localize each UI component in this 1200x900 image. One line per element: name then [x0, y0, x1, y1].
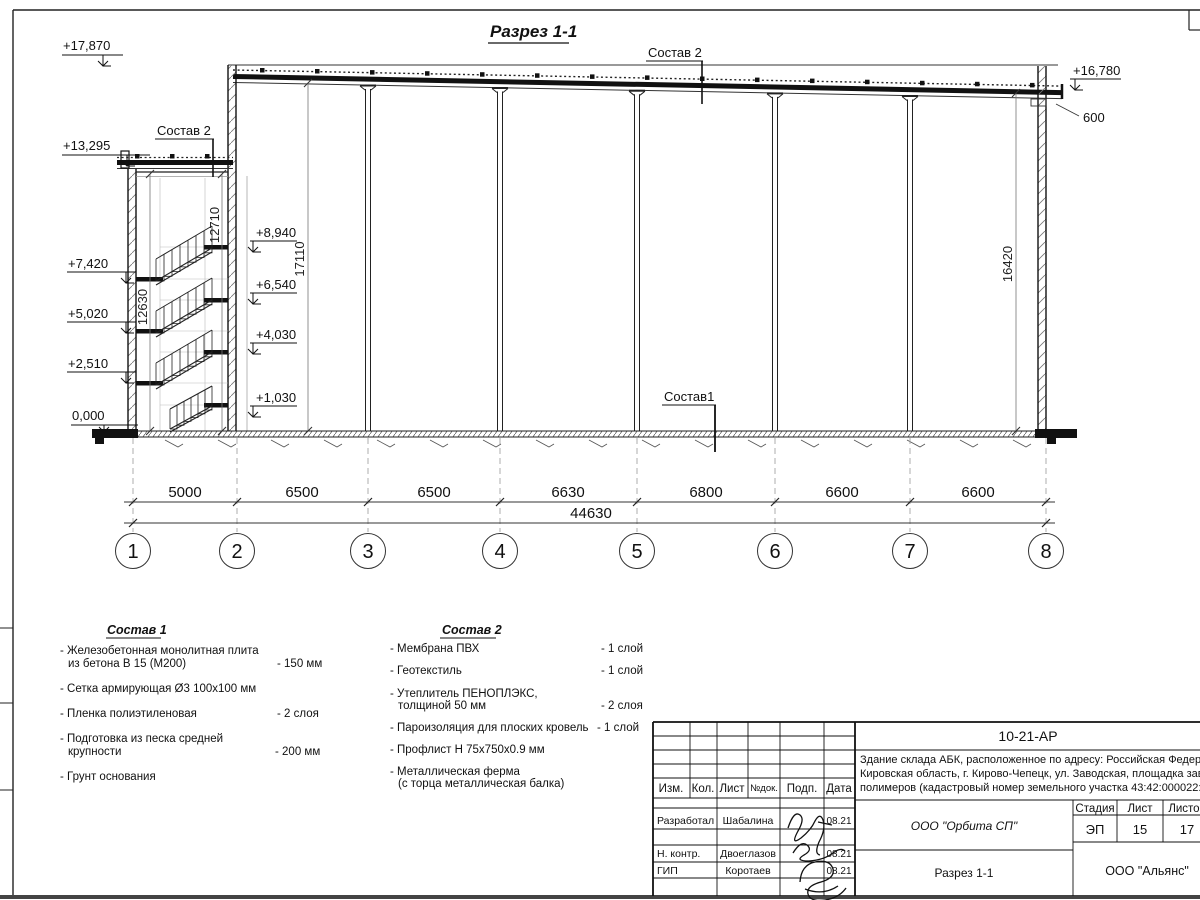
span-dim: 6500 — [285, 484, 318, 501]
span-dim: 6800 — [689, 484, 722, 501]
svg-text:Здание склада АБК, расположенн: Здание склада АБК, расположенное по адре… — [860, 754, 1200, 766]
svg-text:из бетона В 15 (М200): из бетона В 15 (М200) — [68, 658, 186, 670]
elev-16780: +16,780 — [1070, 63, 1121, 90]
sostav2-header: Состав 2 — [442, 623, 502, 637]
elev-17870: +17,870 — [62, 38, 123, 66]
svg-text:крупности: крупности — [68, 746, 121, 758]
axis-bubble-6: 6 — [769, 541, 780, 563]
axis8-wall — [1038, 66, 1046, 431]
column-axis5 — [629, 91, 645, 431]
svg-text:+16,780: +16,780 — [1073, 63, 1120, 78]
svg-text:+7,420: +7,420 — [68, 256, 108, 271]
axis-bubble-4: 4 — [494, 541, 505, 563]
svg-text:600: 600 — [1083, 110, 1105, 125]
elev-7420: +7,420 — [67, 256, 136, 283]
dim-12630: 12630 — [135, 289, 150, 325]
doc-code: 10-21-АР — [998, 728, 1057, 744]
svg-text:- 2 слоя: - 2 слоя — [277, 708, 319, 720]
frame-bottom-band — [0, 895, 1200, 899]
svg-text:- Утеплитель ПЕНОПЛЭКС,: - Утеплитель ПЕНОПЛЭКС, — [390, 688, 538, 700]
axis-bubbles: 1 2 3 4 5 6 7 8 — [116, 534, 1064, 569]
axis-bubble-8: 8 — [1040, 541, 1051, 563]
svg-text:- 150 мм: - 150 мм — [277, 658, 322, 670]
sheet-header: Лист — [1128, 803, 1154, 815]
span-dim: 6500 — [417, 484, 450, 501]
svg-text:+13,295: +13,295 — [63, 138, 110, 153]
stage-values: ЭП 15 17 — [1086, 822, 1195, 837]
svg-text:- Пароизоляция для плоских кро: - Пароизоляция для плоских кровель — [390, 722, 589, 734]
column-axis7 — [902, 96, 918, 431]
main-roof — [228, 65, 1062, 99]
hall-columns — [360, 86, 918, 432]
stage-value: ЭП — [1086, 822, 1105, 837]
svg-text:+4,030: +4,030 — [256, 327, 296, 342]
svg-text:(с торца металлическая балка): (с торца металлическая балка) — [398, 778, 565, 790]
role-developer: Разработал — [657, 815, 714, 827]
svg-text:- Сетка армирующая Ø3 100x100: - Сетка армирующая Ø3 100x100 мм — [60, 683, 256, 695]
date-gip: 08.21 — [826, 866, 851, 877]
walls — [128, 65, 1046, 431]
axis-bubble-2: 2 — [231, 541, 242, 563]
elev-6540: +6,540 — [248, 277, 297, 304]
axis-bubble-5: 5 — [631, 541, 642, 563]
callout-sostav1-floor: Состав1 — [662, 389, 716, 452]
elev-2510: +2,510 — [67, 356, 136, 383]
svg-text:- Подготовка из песка средней: - Подготовка из песка средней — [60, 733, 223, 745]
stage-header: Стадия — [1075, 803, 1114, 815]
callout-sostav2-roof: Состав 2 — [646, 45, 703, 104]
axis2-wall — [228, 65, 236, 431]
elev-5020: +5,020 — [67, 306, 136, 333]
svg-text:толщиной 50 мм: толщиной 50 мм — [398, 700, 486, 712]
col-podp: Подп. — [787, 783, 818, 795]
callout-parapet-600: 600 — [1056, 104, 1105, 125]
stage-headers: Стадия Лист Листов — [1075, 803, 1200, 815]
svg-text:Кировская область, г. Кирово-Ч: Кировская область, г. Кирово-Чепецк, ул.… — [860, 768, 1200, 780]
dim-16420: 16420 — [1000, 246, 1015, 282]
svg-text:- Мембрана ПВХ: - Мембрана ПВХ — [390, 643, 480, 655]
span-dim: 5000 — [168, 484, 201, 501]
col-izm: Изм. — [659, 783, 684, 795]
total-dim: 44630 — [570, 505, 612, 522]
svg-text:- Геотекстиль: - Геотекстиль — [390, 665, 462, 677]
sostav1-header: Состав 1 — [107, 623, 167, 637]
svg-text:полимеров (кадастровый номер з: полимеров (кадастровый номер земельного … — [860, 782, 1200, 794]
sostav1-list: Состав 1 - Железобетонная монолитная пли… — [60, 623, 322, 783]
title-block: 10-21-АР Здание склада АБК, расположенно… — [653, 722, 1200, 900]
axis-bubble-1: 1 — [127, 541, 138, 563]
column-axis4 — [492, 88, 508, 431]
svg-text:+1,030: +1,030 — [256, 390, 296, 405]
axis-bubble-3: 3 — [362, 541, 373, 563]
tb-header-row: Изм. Кол. Лист №док. Подп. Дата — [659, 783, 853, 795]
svg-text:Состав 2: Состав 2 — [157, 123, 211, 138]
tb-signature-rows: Разработал Шабалина 08.21 Н. контр. Двое… — [657, 815, 852, 877]
ground-slab — [92, 429, 1077, 447]
role-gip: ГИП — [657, 865, 678, 877]
svg-text:- Пленка полиэтиленовая: - Пленка полиэтиленовая — [60, 708, 197, 720]
svg-text:+17,870: +17,870 — [63, 38, 110, 53]
svg-text:- Железобетонная монолитная п: - Железобетонная монолитная плита — [60, 645, 259, 657]
dim-12710: 12710 — [207, 207, 222, 243]
sostav2-list: Состав 2 - Мембрана ПВХ - 1 слой - Геоте… — [390, 623, 643, 790]
firm-name: ООО "Альянс" — [1105, 864, 1189, 878]
col-kol: Кол. — [692, 783, 715, 795]
svg-text:0,000: 0,000 — [72, 408, 105, 423]
drawing-sheet: Разрез 1-1 — [0, 0, 1200, 900]
svg-text:+6,540: +6,540 — [256, 277, 296, 292]
column-axis6 — [767, 93, 783, 431]
svg-text:- 1 слой: - 1 слой — [601, 665, 643, 677]
dim-17110: 17110 — [292, 241, 307, 276]
col-ndok: №док. — [750, 783, 778, 794]
col-data: Дата — [826, 783, 852, 795]
span-dim: 6600 — [825, 484, 858, 501]
sheets-value: 17 — [1180, 822, 1194, 837]
svg-text:Состав 2: Состав 2 — [648, 45, 702, 60]
sheet-value: 15 — [1133, 822, 1147, 837]
span-dim: 6600 — [961, 484, 994, 501]
svg-text:- 1 слой: - 1 слой — [601, 643, 643, 655]
project-description: Здание склада АБК, расположенное по адре… — [860, 754, 1200, 794]
sheet-title: Разрез 1-1 — [935, 866, 994, 880]
vertical-dimensions: 12630 12710 17110 16420 — [135, 79, 1020, 435]
stair-flights — [156, 226, 212, 432]
name-ncontrol: Двоеглазов — [720, 848, 776, 860]
svg-text:- Профлист Н 75x750x0.9 мм: - Профлист Н 75x750x0.9 мм — [390, 744, 545, 756]
view-title-text: Разрез 1-1 — [490, 22, 577, 41]
role-ncontrol: Н. контр. — [657, 848, 700, 860]
span-dim: 6630 — [551, 484, 584, 501]
svg-text:- 200 мм: - 200 мм — [275, 746, 320, 758]
column-axis3 — [360, 86, 376, 432]
svg-text:Состав1: Состав1 — [664, 389, 714, 404]
dimension-chain: 5000 6500 6500 6630 6800 6600 6600 44630… — [116, 438, 1064, 569]
svg-text:- Металлическая ферма: - Металлическая ферма — [390, 766, 521, 778]
elev-4030: +4,030 — [248, 327, 297, 354]
svg-text:- 1 слой: - 1 слой — [597, 722, 639, 734]
svg-text:- 2 слоя: - 2 слоя — [601, 700, 643, 712]
elev-1030: +1,030 — [248, 390, 297, 417]
col-list: Лист — [720, 783, 746, 795]
svg-text:+2,510: +2,510 — [68, 356, 108, 371]
name-gip: Коротаев — [725, 865, 771, 877]
svg-text:+8,940: +8,940 — [256, 225, 296, 240]
svg-text:- Грунт основания: - Грунт основания — [60, 771, 156, 783]
name-developer: Шабалина — [723, 815, 774, 827]
sheets-header: Листов — [1168, 803, 1200, 815]
date-developer: 08.21 — [826, 816, 851, 827]
elev-8940: +8,940 — [248, 225, 297, 252]
view-title: Разрез 1-1 — [488, 22, 577, 43]
org-name: ООО "Орбита СП" — [911, 819, 1018, 833]
svg-text:+5,020: +5,020 — [68, 306, 108, 321]
ground-break-marks — [165, 440, 1031, 447]
axis-bubble-7: 7 — [904, 541, 915, 563]
